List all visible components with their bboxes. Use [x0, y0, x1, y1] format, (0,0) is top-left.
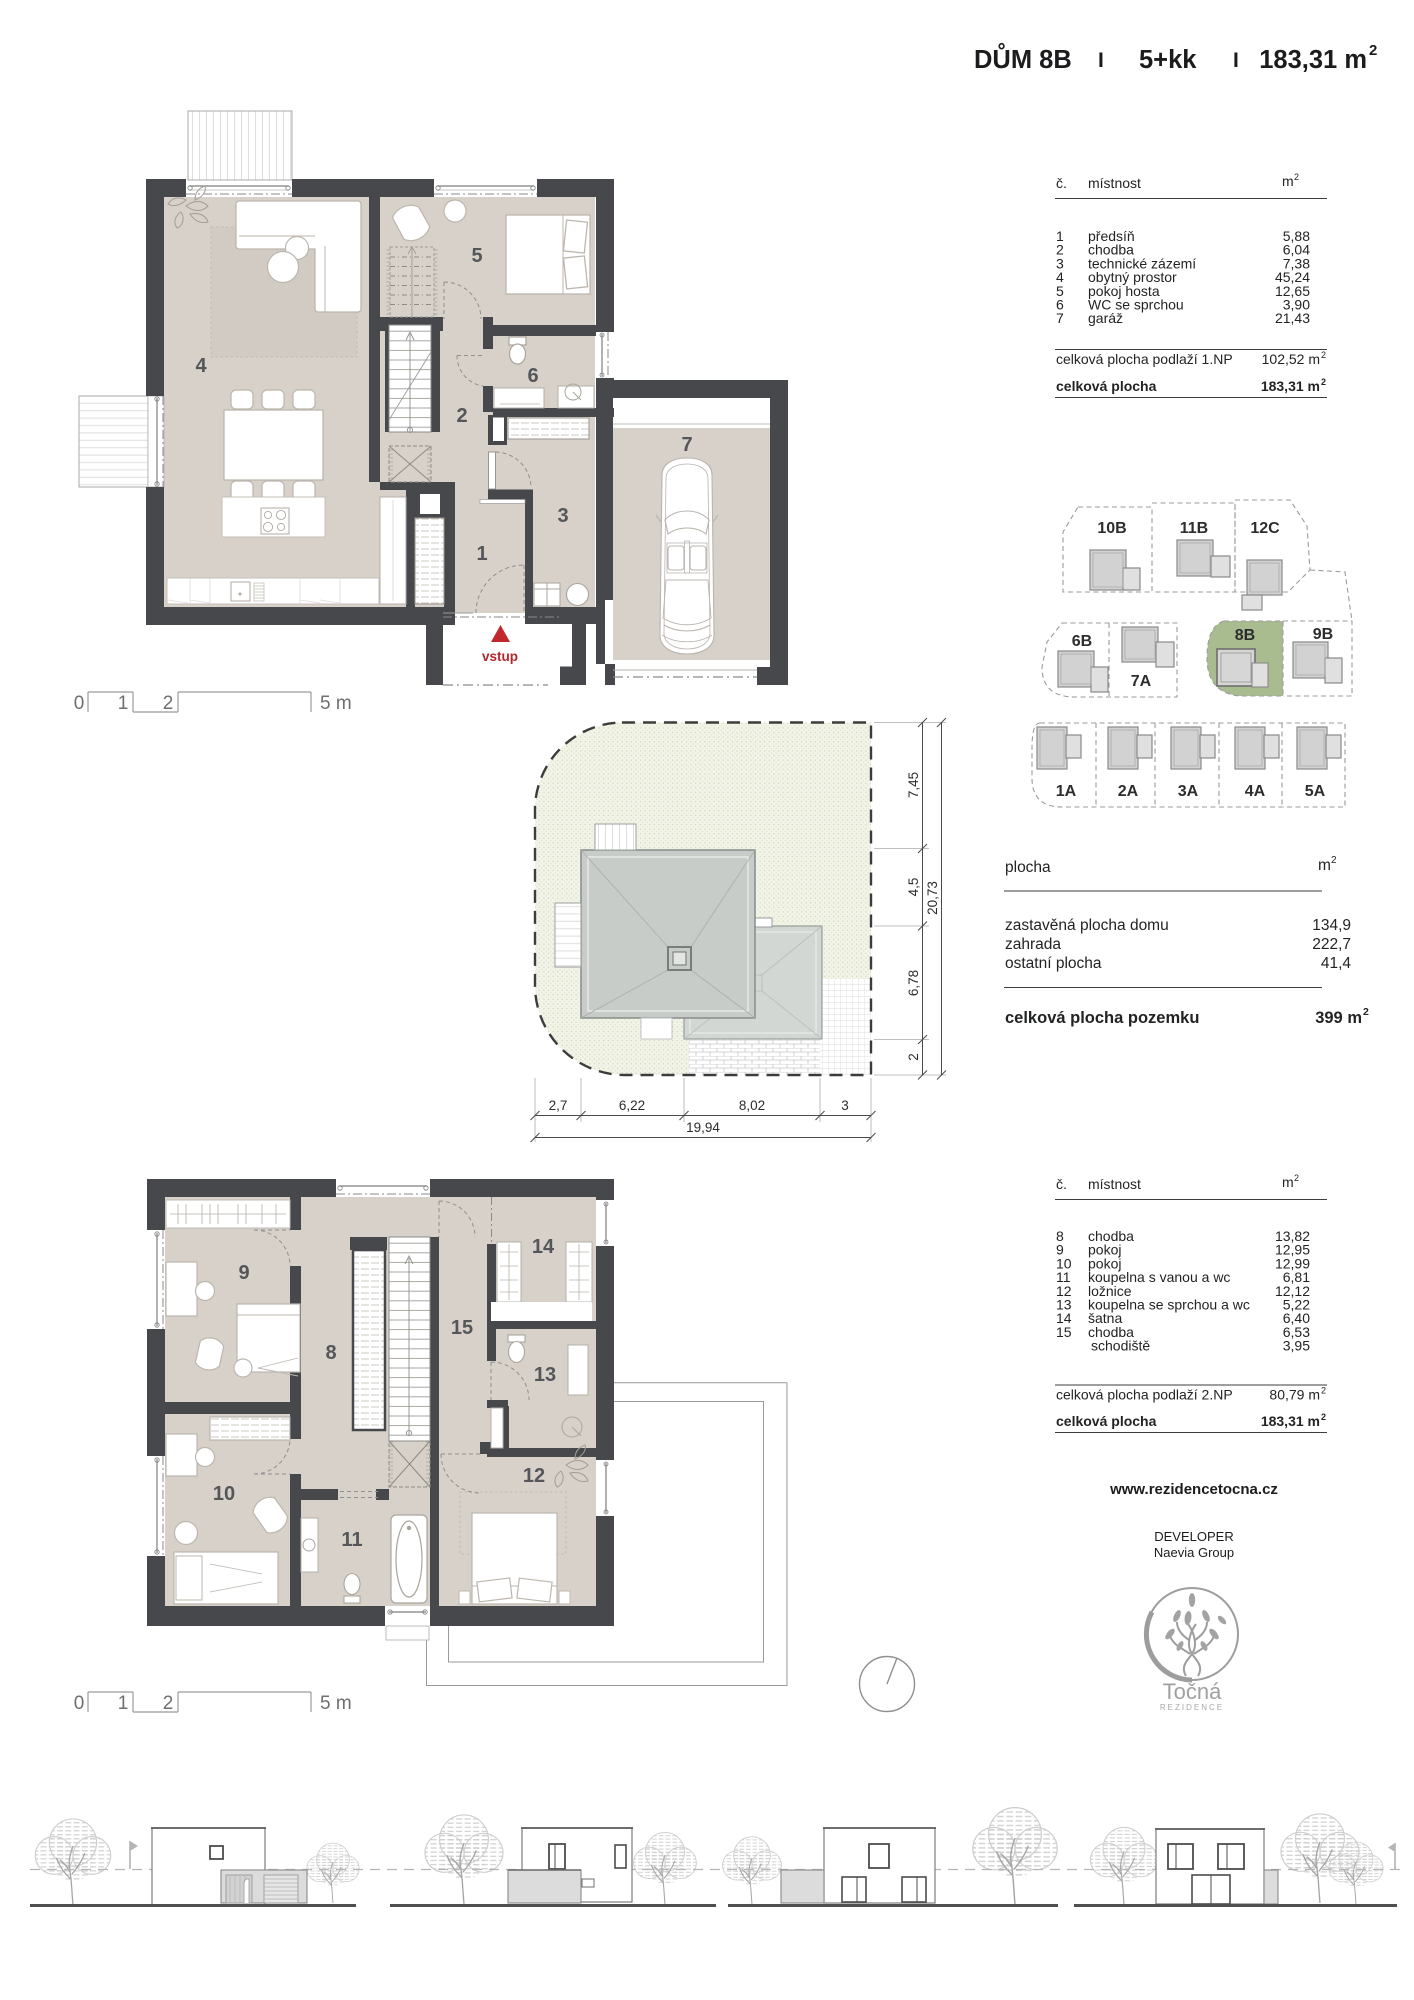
svg-text:20,73: 20,73 — [925, 881, 940, 915]
svg-text:schodiště: schodiště — [1091, 1338, 1150, 1354]
svg-text:183,31 m: 183,31 m — [1261, 378, 1320, 394]
svg-text:6B: 6B — [1072, 633, 1092, 650]
svg-text:183,31 m: 183,31 m — [1261, 1413, 1320, 1429]
svg-text:celková plocha: celková plocha — [1056, 1413, 1157, 1429]
svg-text:5+kk: 5+kk — [1139, 46, 1197, 74]
svg-text:1A: 1A — [1056, 783, 1077, 800]
svg-text:2: 2 — [906, 1053, 921, 1061]
svg-text:4: 4 — [195, 355, 207, 377]
svg-text:Točná: Točná — [1163, 1679, 1222, 1704]
svg-text:Naevia Group: Naevia Group — [1154, 1545, 1234, 1560]
svg-text:5: 5 — [471, 245, 482, 267]
svg-text:3,95: 3,95 — [1283, 1338, 1310, 1354]
svg-text:2: 2 — [1369, 42, 1377, 59]
svg-text:2: 2 — [1321, 350, 1326, 360]
svg-text:80,79 m: 80,79 m — [1269, 1387, 1320, 1403]
svg-text:3A: 3A — [1178, 783, 1199, 800]
svg-text:7A: 7A — [1131, 673, 1152, 690]
svg-text:183,31 m: 183,31 m — [1259, 46, 1367, 74]
svg-text:2: 2 — [1321, 1412, 1326, 1422]
svg-text:3: 3 — [557, 505, 568, 527]
svg-text:6,78: 6,78 — [906, 970, 921, 996]
svg-text:9: 9 — [238, 1262, 249, 1284]
svg-text:11: 11 — [341, 1529, 362, 1551]
svg-text:7: 7 — [681, 434, 692, 456]
svg-text:8B: 8B — [1235, 627, 1255, 644]
svg-text:8,02: 8,02 — [739, 1098, 765, 1113]
svg-text:2: 2 — [163, 693, 174, 714]
svg-text:13: 13 — [534, 1364, 556, 1386]
svg-text:celková plocha podlaží 2.NP: celková plocha podlaží 2.NP — [1056, 1387, 1233, 1403]
svg-text:9B: 9B — [1313, 626, 1333, 643]
svg-text:č.: č. — [1056, 175, 1067, 191]
svg-text:I: I — [1098, 49, 1104, 72]
svg-text:0: 0 — [74, 693, 85, 714]
svg-text:7,45: 7,45 — [906, 772, 921, 798]
svg-text:plocha: plocha — [1005, 859, 1051, 876]
svg-text:zastavěná plocha domu: zastavěná plocha domu — [1005, 917, 1169, 934]
svg-text:222,7: 222,7 — [1312, 936, 1351, 953]
svg-text:2: 2 — [163, 1693, 174, 1714]
svg-text:místnost: místnost — [1088, 1176, 1141, 1192]
svg-text:I: I — [1233, 49, 1239, 72]
svg-text:celková plocha: celková plocha — [1056, 378, 1157, 394]
svg-text:4A: 4A — [1245, 783, 1266, 800]
svg-text:41,4: 41,4 — [1321, 955, 1352, 972]
svg-text:14: 14 — [532, 1236, 555, 1258]
svg-text:19,94: 19,94 — [686, 1120, 720, 1135]
svg-text:DŮM 8B: DŮM 8B — [974, 42, 1072, 74]
svg-text:1: 1 — [118, 1693, 129, 1714]
svg-text:m: m — [1318, 857, 1331, 874]
svg-text:m: m — [1282, 1174, 1294, 1190]
svg-text:3: 3 — [841, 1098, 849, 1113]
svg-text:www.rezidencetocna.cz: www.rezidencetocna.cz — [1109, 1481, 1278, 1498]
svg-text:10B: 10B — [1097, 520, 1126, 537]
svg-text:12C: 12C — [1250, 520, 1280, 537]
svg-text:vstup: vstup — [482, 649, 518, 664]
svg-text:2: 2 — [456, 405, 467, 427]
svg-text:DEVELOPER: DEVELOPER — [1154, 1529, 1233, 1544]
svg-text:2,7: 2,7 — [549, 1098, 568, 1113]
svg-text:celková plocha podlaží 1.NP: celková plocha podlaží 1.NP — [1056, 351, 1233, 367]
svg-text:8: 8 — [325, 1342, 336, 1364]
svg-text:102,52 m: 102,52 m — [1262, 351, 1320, 367]
svg-text:2: 2 — [1294, 172, 1299, 182]
svg-text:1: 1 — [476, 543, 487, 565]
svg-text:5A: 5A — [1305, 783, 1326, 800]
svg-text:celková plocha pozemku: celková plocha pozemku — [1005, 1009, 1199, 1027]
svg-text:ostatní plocha: ostatní plocha — [1005, 955, 1102, 972]
svg-text:2: 2 — [1363, 1006, 1369, 1018]
svg-text:134,9: 134,9 — [1312, 917, 1351, 934]
svg-text:12: 12 — [523, 1465, 545, 1487]
svg-text:č.: č. — [1056, 1176, 1067, 1192]
svg-text:399 m: 399 m — [1315, 1009, 1362, 1027]
svg-text:11B: 11B — [1180, 520, 1208, 537]
svg-text:2: 2 — [1294, 1173, 1299, 1183]
svg-text:4,5: 4,5 — [906, 878, 921, 897]
svg-text:REZIDENCE: REZIDENCE — [1160, 1703, 1224, 1712]
svg-text:zahrada: zahrada — [1005, 936, 1061, 953]
svg-text:m: m — [1282, 173, 1294, 189]
svg-text:7: 7 — [1056, 310, 1064, 326]
svg-text:2: 2 — [1321, 377, 1326, 387]
svg-text:5 m: 5 m — [320, 1693, 352, 1714]
svg-text:10: 10 — [213, 1483, 235, 1505]
svg-text:2: 2 — [1321, 1386, 1326, 1396]
svg-text:místnost: místnost — [1088, 175, 1141, 191]
svg-text:15: 15 — [451, 1317, 473, 1339]
svg-text:2: 2 — [1331, 855, 1337, 866]
svg-text:0: 0 — [74, 1693, 85, 1714]
svg-text:21,43: 21,43 — [1275, 310, 1310, 326]
svg-text:1: 1 — [118, 693, 129, 714]
svg-text:garáž: garáž — [1088, 310, 1123, 326]
svg-text:5 m: 5 m — [320, 693, 352, 714]
svg-text:6: 6 — [527, 365, 538, 387]
svg-text:15: 15 — [1056, 1324, 1072, 1340]
svg-text:2A: 2A — [1118, 783, 1139, 800]
svg-text:6,22: 6,22 — [619, 1098, 645, 1113]
